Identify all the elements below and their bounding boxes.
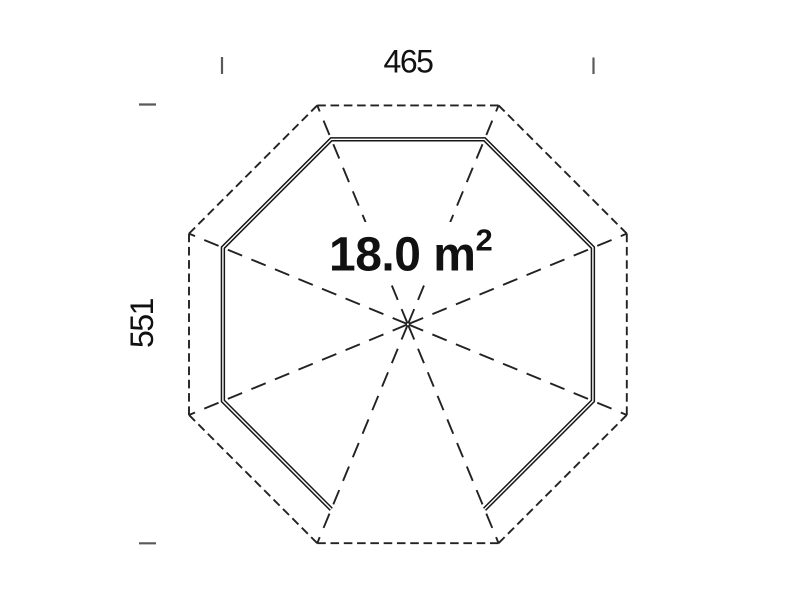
svg-text:18.0 m2: 18.0 m2 [329,223,492,282]
svg-text:551: 551 [124,298,160,348]
svg-text:465: 465 [384,44,434,80]
